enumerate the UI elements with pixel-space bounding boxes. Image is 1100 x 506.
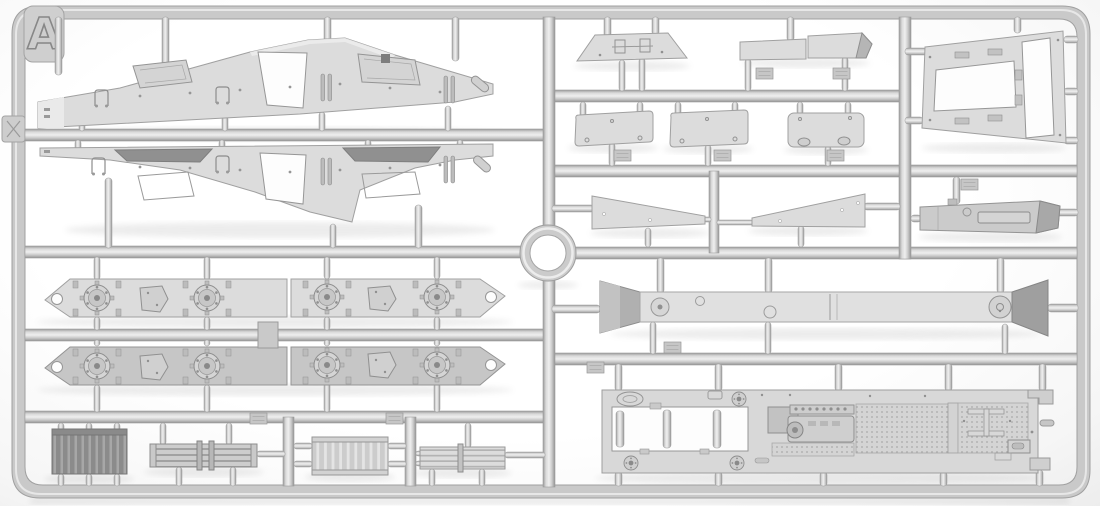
circular-ring-part: [520, 225, 576, 281]
radiator-core-light: [312, 437, 388, 475]
engine-compartment-frame: [922, 31, 1066, 143]
slatted-cooler-light: [420, 444, 505, 472]
runner-compartment-1: [283, 417, 294, 486]
sprue-photo: A: [0, 0, 1100, 506]
runner-left-3: [25, 329, 551, 341]
runner-right-3: [572, 247, 1077, 259]
muffler-with-clamps: [150, 441, 257, 470]
runner-left-1: [25, 129, 551, 141]
hull-cutout: [260, 153, 306, 204]
runner-block: [258, 322, 278, 348]
runner-center-top: [543, 17, 555, 229]
hull-floor-beam: [600, 280, 1048, 336]
engine-deck-plate: [602, 390, 1054, 473]
frame-opening-narrow: [1022, 38, 1054, 138]
stowage-box-pair: [740, 33, 872, 60]
fuel-tank-box: [920, 199, 1060, 233]
runner-left-2: [25, 246, 524, 258]
mud-flap-panels: [575, 110, 864, 147]
runner-right-4: [551, 353, 1077, 365]
runner-right-1: [551, 90, 905, 102]
deck-opening: [612, 407, 748, 451]
antislip-panel-1: [856, 404, 948, 453]
ejector-tab: [2, 116, 25, 142]
sprue-drawing: A: [0, 0, 1100, 506]
runner-strips: [709, 171, 719, 253]
runner-right-2: [551, 165, 1077, 177]
roof-plate: [577, 33, 687, 61]
runner-compartment-2: [405, 417, 416, 486]
upper-hull-panel-a: [38, 38, 493, 128]
frame-opening-large: [934, 61, 1016, 111]
radiator-core-dark: [52, 429, 127, 474]
